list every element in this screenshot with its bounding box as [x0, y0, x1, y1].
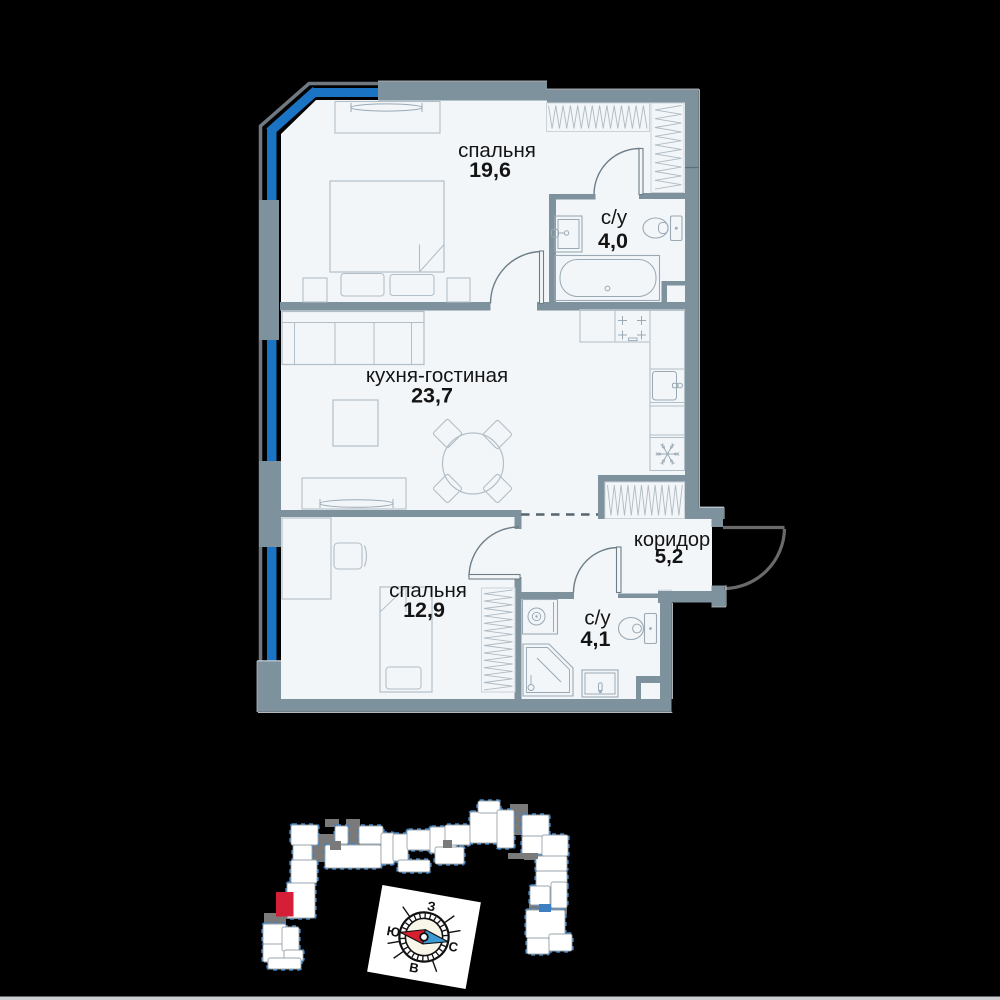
svg-text:4,1: 4,1 — [581, 627, 611, 651]
svg-text:12,9: 12,9 — [403, 598, 445, 622]
svg-text:19,6: 19,6 — [469, 158, 511, 182]
svg-text:с/у: с/у — [601, 206, 628, 229]
svg-text:23,7: 23,7 — [411, 384, 453, 408]
svg-text:4,0: 4,0 — [598, 229, 628, 253]
svg-text:5,2: 5,2 — [655, 545, 684, 568]
svg-text:Ю: Ю — [386, 923, 402, 940]
